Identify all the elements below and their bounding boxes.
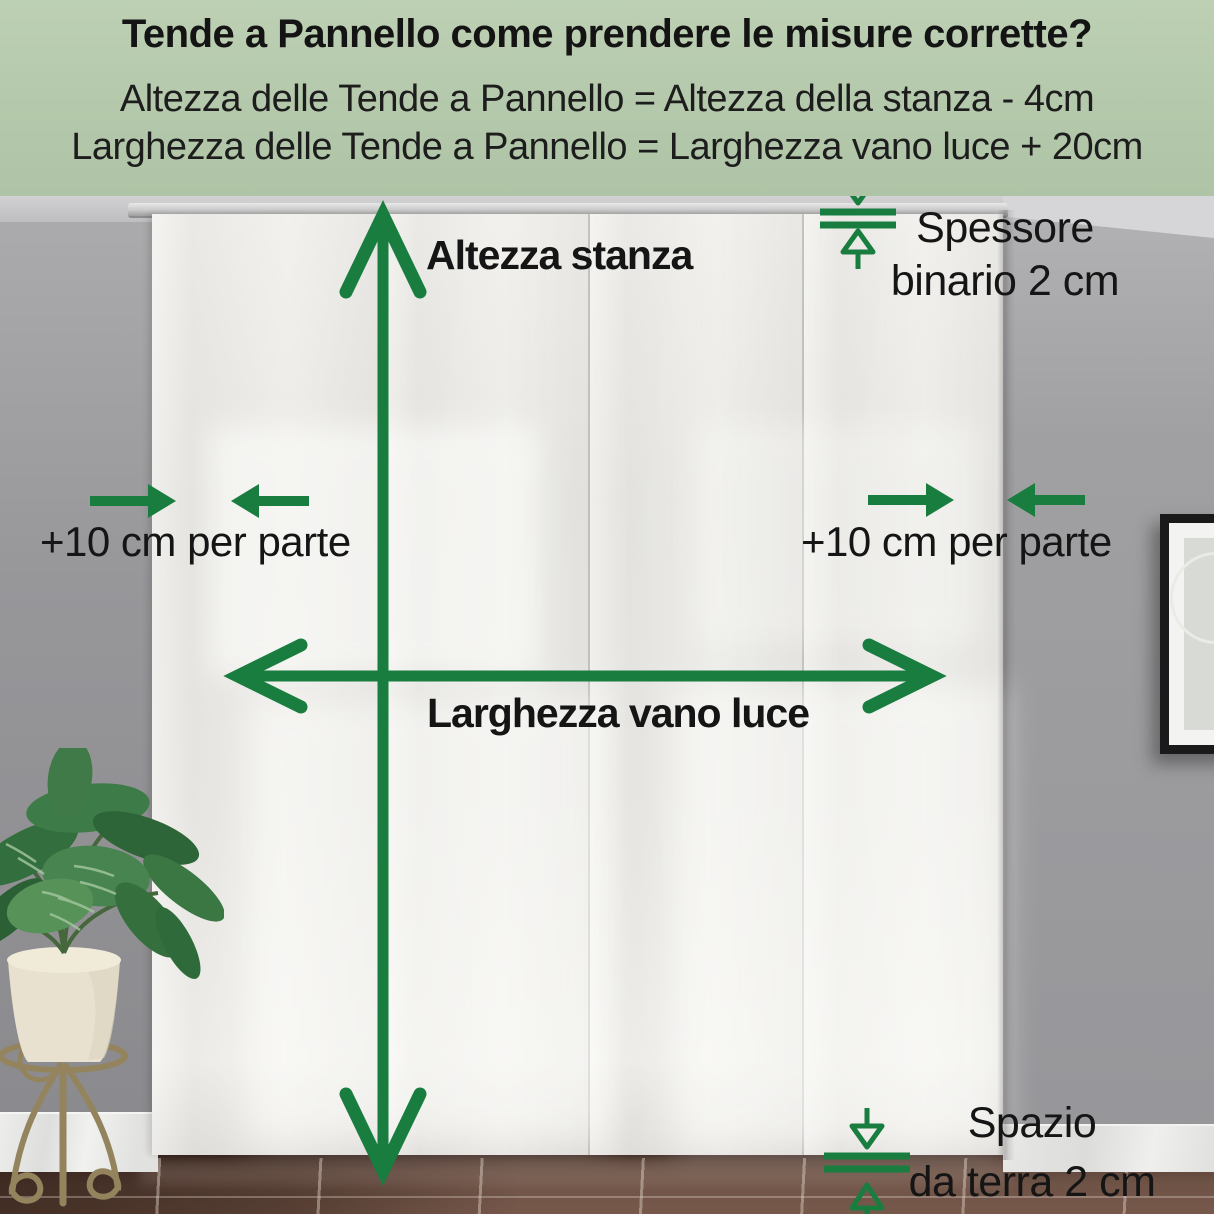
window-light-glow (674, 686, 1004, 1146)
room-height-label: Altezza stanza (426, 232, 692, 279)
floor-gap-label-line2: da terra 2 cm (898, 1153, 1166, 1212)
picture-frame (1160, 514, 1214, 754)
floor-gap-label-line1: Spazio (898, 1094, 1166, 1153)
header-title: Tende a Pannello come prendere le misure… (0, 12, 1214, 57)
potted-plant-illustration (0, 748, 224, 1214)
curtain-measurement-infographic: Altezza stanza Larghezza vano luce Spess… (0, 0, 1214, 1214)
header-formula-width: Larghezza delle Tende a Pannello = Largh… (0, 126, 1214, 169)
header-formula-height: Altezza delle Tende a Pannello = Altezza… (0, 78, 1214, 121)
floor-light-reflection (140, 1162, 1010, 1184)
window-light-glow (248, 700, 608, 1140)
wall-corner-shadow (997, 210, 1015, 1160)
panel-curtains (152, 214, 1003, 1155)
plant-pot (7, 947, 121, 1062)
floor-gap-label: Spazio da terra 2 cm (898, 1094, 1166, 1212)
track-thickness-label-line2: binario 2 cm (880, 255, 1130, 308)
side-allowance-label-right: +10 cm per parte (801, 518, 1112, 566)
opening-width-label: Larghezza vano luce (427, 690, 809, 737)
plant-stand (1, 1040, 125, 1203)
side-allowance-label-left: +10 cm per parte (40, 518, 351, 566)
track-thickness-label-line1: Spessore (880, 202, 1130, 255)
track-thickness-label: Spessore binario 2 cm (880, 202, 1130, 308)
header: Tende a Pannello come prendere le misure… (0, 0, 1214, 196)
